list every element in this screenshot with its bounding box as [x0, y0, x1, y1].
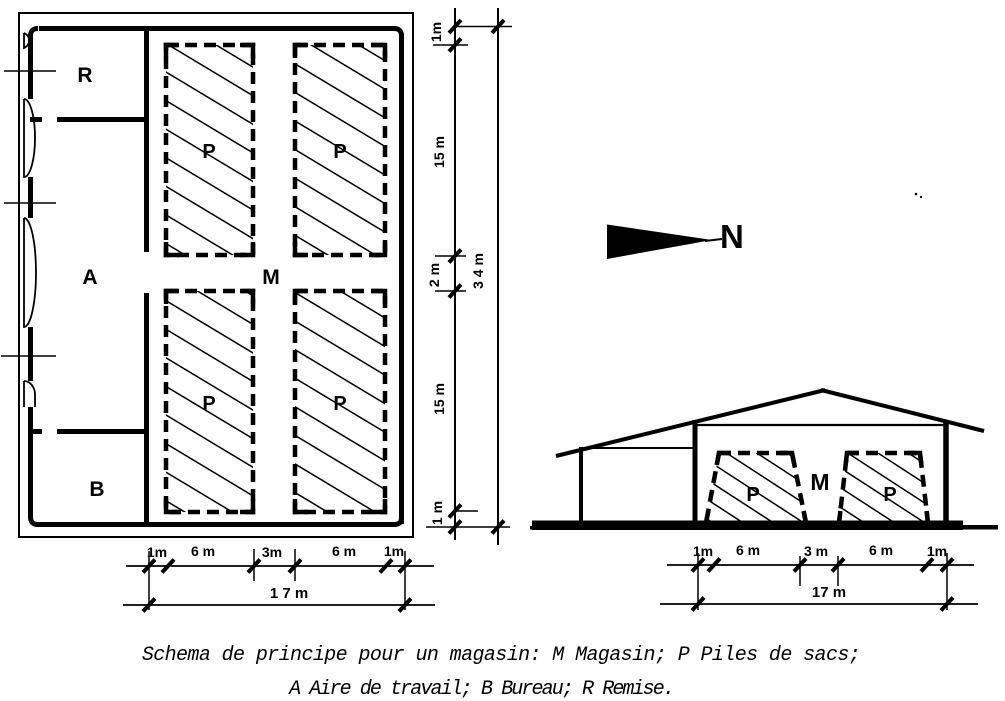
svg-text:1m: 1m — [428, 22, 444, 42]
svg-text:1m: 1m — [927, 543, 947, 559]
svg-text:17 m: 17 m — [812, 584, 846, 601]
svg-text:3 m: 3 m — [804, 543, 828, 559]
svg-text:3 4 m: 3 4 m — [470, 253, 486, 289]
svg-text:M: M — [810, 469, 829, 495]
svg-text:A Aire de travail; B Bureau; R: A Aire de travail; B Bureau; R Remise. — [287, 678, 673, 701]
svg-text:P: P — [202, 141, 215, 163]
svg-text:1m: 1m — [384, 543, 404, 559]
svg-text:P: P — [333, 141, 346, 163]
svg-text:3m: 3m — [262, 544, 282, 560]
svg-text:P: P — [883, 484, 896, 506]
svg-text:P: P — [746, 484, 759, 506]
svg-text:6 m: 6 m — [332, 543, 356, 559]
svg-text:A: A — [82, 266, 97, 289]
svg-text:1m: 1m — [147, 544, 167, 560]
svg-text:6 m: 6 m — [191, 543, 215, 559]
svg-text:15 m: 15 m — [431, 136, 447, 168]
svg-text:6 m: 6 m — [869, 542, 893, 558]
svg-text:1 m: 1 m — [429, 501, 445, 525]
svg-text:R: R — [77, 64, 92, 87]
svg-text:N: N — [720, 218, 744, 255]
svg-text:1 7 m: 1 7 m — [270, 585, 308, 602]
svg-text:P: P — [333, 393, 346, 415]
svg-text:Schema de principe pour un mag: Schema de principe pour un magasin: M Ma… — [142, 644, 860, 667]
svg-text:2 m: 2 m — [426, 263, 442, 287]
svg-text:P: P — [202, 393, 215, 415]
svg-text:6 m: 6 m — [736, 542, 760, 558]
svg-text:1m: 1m — [693, 543, 713, 559]
svg-text:15 m: 15 m — [431, 383, 447, 415]
svg-text:M: M — [262, 266, 280, 289]
svg-text:B: B — [89, 478, 104, 501]
